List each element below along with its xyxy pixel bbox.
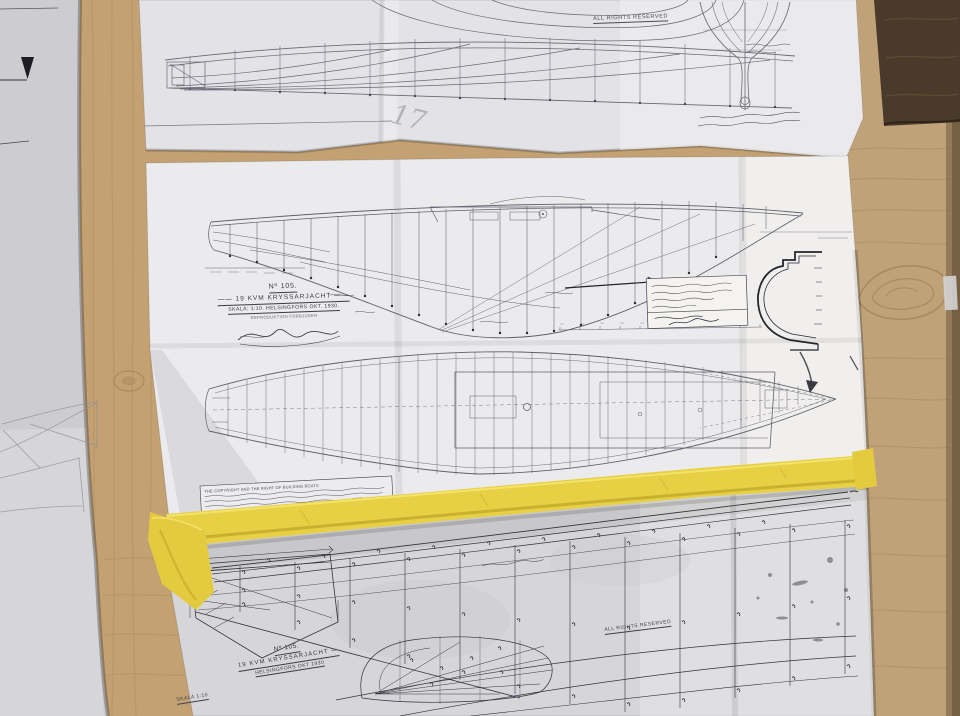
photo-frame: THE COPYRIGHT AND THE RIGHT OF BUILDING …: [0, 0, 960, 716]
paper-scrap-right-edge: [943, 276, 958, 311]
top-drawing-sheet: [139, 0, 863, 160]
middle-title-block: Nº 105. —— 19 KVM KRYSSARJACHT —— SKALA:…: [197, 280, 370, 323]
blueprint-photo-artwork: THE COPYRIGHT AND THE RIGHT OF BUILDING …: [0, 0, 960, 716]
middle-drawing-number: Nº 105.: [269, 282, 298, 293]
middle-repro-line: REPRODUKTION FÖRBJUDEN: [250, 313, 317, 320]
dark-wood-corner: [874, 0, 960, 126]
annotation-box: [646, 275, 748, 328]
